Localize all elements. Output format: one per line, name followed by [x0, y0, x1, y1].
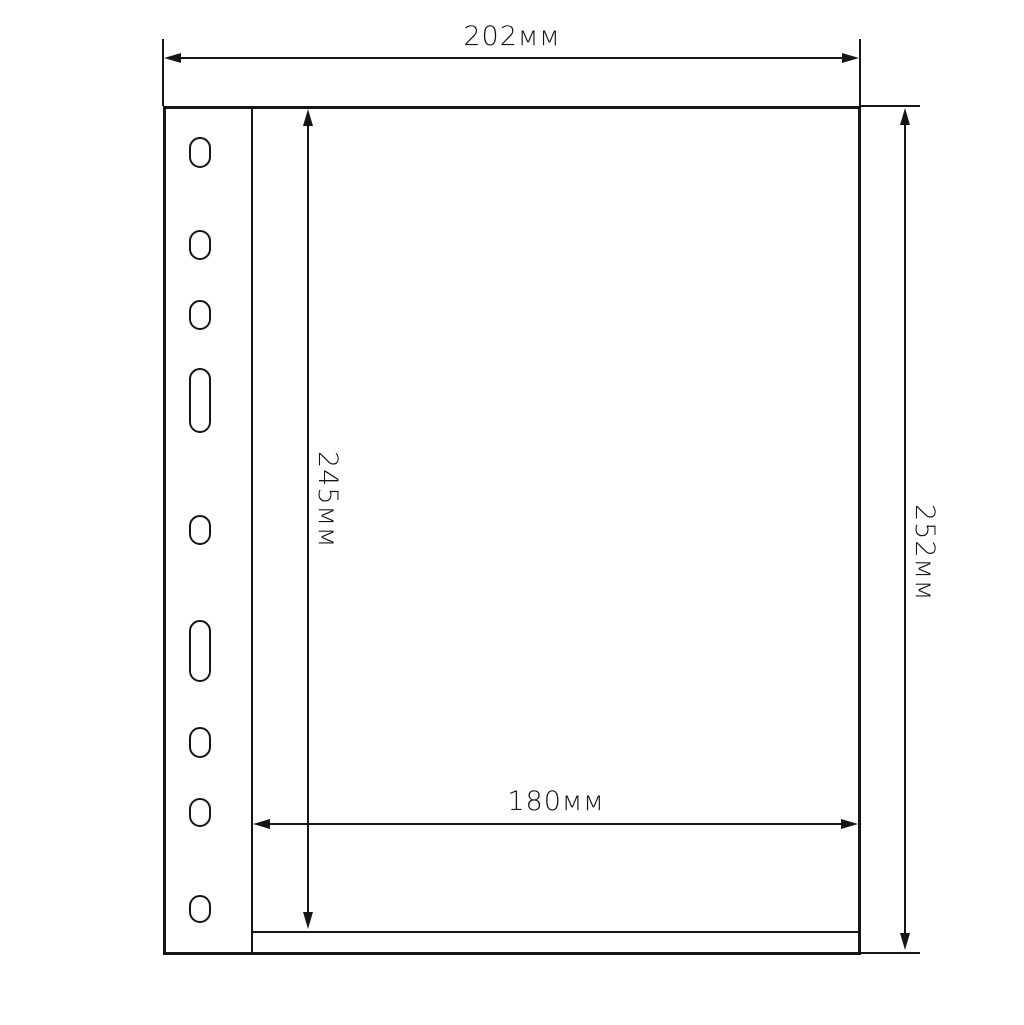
- dim-label-outer-width: 202мм: [412, 22, 612, 52]
- arrowhead-right-icon: [841, 819, 858, 829]
- extension-line-bottom: [861, 952, 920, 954]
- punch-hole: [189, 368, 211, 433]
- extension-line-right: [859, 39, 861, 106]
- punch-hole: [189, 727, 211, 758]
- arrowhead-right-icon: [842, 53, 859, 63]
- punch-hole: [189, 137, 211, 168]
- arrowhead-left-icon: [253, 819, 270, 829]
- pocket-bottom-seam: [252, 931, 861, 933]
- dimension-line: [904, 120, 906, 940]
- dimension-line: [307, 120, 309, 916]
- extension-line-left: [162, 39, 164, 106]
- dimension-line: [170, 57, 854, 59]
- dim-label-outer-height: 252мм: [909, 504, 939, 601]
- diagram-canvas: 202мм 252мм 245мм 180мм: [0, 0, 1024, 1025]
- arrowhead-left-icon: [164, 53, 181, 63]
- punch-hole: [189, 895, 211, 923]
- punch-hole: [189, 798, 211, 827]
- dim-label-pocket-height: 245мм: [312, 451, 342, 548]
- punch-hole: [189, 620, 211, 682]
- extension-line-top: [861, 105, 920, 107]
- punch-hole: [189, 515, 211, 545]
- arrowhead-up-icon: [303, 109, 313, 126]
- arrowhead-down-icon: [900, 933, 910, 950]
- punch-hole: [189, 230, 211, 260]
- dimension-line: [260, 823, 850, 825]
- dim-label-pocket-width: 180мм: [456, 787, 656, 817]
- punch-hole: [189, 300, 211, 330]
- arrowhead-up-icon: [900, 108, 910, 125]
- arrowhead-down-icon: [303, 912, 313, 929]
